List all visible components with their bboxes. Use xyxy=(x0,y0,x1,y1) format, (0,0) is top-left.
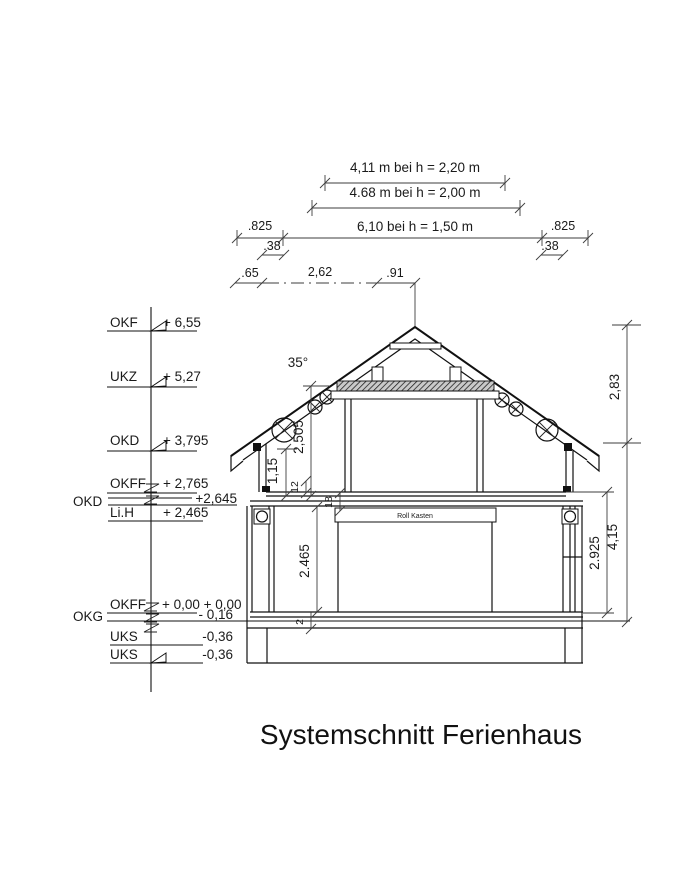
level-ukz-value: + 5,27 xyxy=(163,369,201,384)
level-okff-upper-label: OKFF xyxy=(110,476,146,491)
dim-label-65: .65 xyxy=(241,266,258,280)
level-uks1-label: UKS xyxy=(110,629,138,644)
wall-plate-left xyxy=(253,443,261,451)
dim-label-38-right: .38 xyxy=(541,239,558,253)
dim-label-610: 6,10 bei h = 1,50 m xyxy=(357,219,473,234)
level-lih-value: + 2,465 xyxy=(163,505,208,520)
post-left xyxy=(372,367,383,381)
dim-floor-package: 18 xyxy=(323,496,335,508)
dim-label-825-left: .825 xyxy=(248,219,272,233)
dim-ground-room: 2.465 xyxy=(297,544,312,578)
level-marker xyxy=(151,377,166,387)
dim-label-411: 4,11 m bei h = 2,20 m xyxy=(350,160,480,175)
section-drawing: 4,11 m bei h = 2,20 m 4.68 m bei h = 2,0… xyxy=(0,0,675,886)
dim-label-468: 4.68 m bei h = 2,00 m xyxy=(350,185,481,200)
roll-kasten-label: Roll Kasten xyxy=(397,513,433,520)
level-okf-value: + 6,55 xyxy=(163,315,201,330)
dim-label-91: .91 xyxy=(386,266,403,280)
dim-right-total: 4,15 xyxy=(605,524,620,550)
ceiling-beam-hatched xyxy=(337,381,494,391)
top-dimension-rows: 4,11 m bei h = 2,20 m 4.68 m bei h = 2,0… xyxy=(230,160,593,327)
dim-label-825-right: .825 xyxy=(551,219,575,233)
level-marker xyxy=(151,653,166,663)
dim-label-262: 2,62 xyxy=(308,265,332,279)
ground-walls xyxy=(247,506,582,663)
level-okd-value: + 3,795 xyxy=(163,433,208,448)
level-uks1-value: -0,36 xyxy=(202,629,233,644)
level-okd-label: OKD xyxy=(110,433,140,448)
level-marker xyxy=(151,441,166,451)
dim-right-inner: 2.925 xyxy=(587,536,602,570)
ceiling-band xyxy=(331,391,499,399)
upper-walls xyxy=(259,399,573,492)
collar-tie xyxy=(390,343,441,349)
level-column: OKF + 6,55 UKZ + 5,27 OKD + 3,795 OKFF +… xyxy=(73,307,630,692)
eave-fascia-left xyxy=(231,455,243,471)
level-ukz-label: UKZ xyxy=(110,369,137,384)
wall-plate-right xyxy=(564,443,572,451)
dim-slab: 2 xyxy=(294,619,306,625)
level-okff-upper-value: + 2,765 xyxy=(163,476,208,491)
dim-roof-height: 2,83 xyxy=(607,374,622,400)
dim-knee-wall: 1,15 xyxy=(265,458,280,484)
level-okf-label: OKF xyxy=(110,315,138,330)
drawing-title: Systemschnitt Ferienhaus xyxy=(260,719,582,750)
level-okg-label: OKG xyxy=(73,609,103,624)
eave-fascia-right xyxy=(587,455,599,471)
level-okd2-label: OKD xyxy=(73,494,103,509)
level-okg-value: - 0,16 xyxy=(198,607,233,622)
dim-floor-layer: 12 xyxy=(289,481,301,493)
post-right xyxy=(450,367,461,381)
level-marker xyxy=(151,321,166,331)
level-uks2-label: UKS xyxy=(110,647,138,662)
level-lih-label: Li.H xyxy=(110,505,134,520)
level-uks2-value: -0,36 xyxy=(202,647,233,662)
level-okd2-value: +2,645 xyxy=(195,491,237,506)
level-okff-zero-label: OKFF xyxy=(110,597,146,612)
roof-angle-label: 35° xyxy=(288,355,308,370)
